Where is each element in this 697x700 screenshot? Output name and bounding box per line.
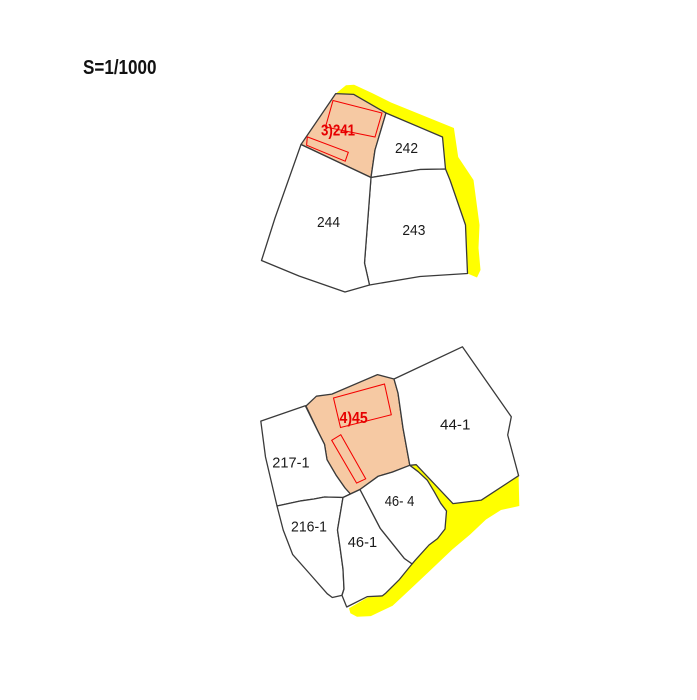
svg-text:217-1: 217-1 <box>272 455 309 472</box>
svg-text:244: 244 <box>317 214 340 231</box>
svg-text:243: 243 <box>402 222 425 239</box>
svg-text:44-1: 44-1 <box>440 417 470 434</box>
svg-text:216-1: 216-1 <box>291 519 327 536</box>
svg-text:S=1/1000: S=1/1000 <box>83 56 157 79</box>
svg-text:4)45: 4)45 <box>340 410 369 427</box>
svg-text:46-1: 46-1 <box>348 534 377 551</box>
svg-text:3)241: 3)241 <box>321 122 355 139</box>
svg-text:242: 242 <box>395 140 418 157</box>
svg-text:46- 4: 46- 4 <box>385 493 415 510</box>
